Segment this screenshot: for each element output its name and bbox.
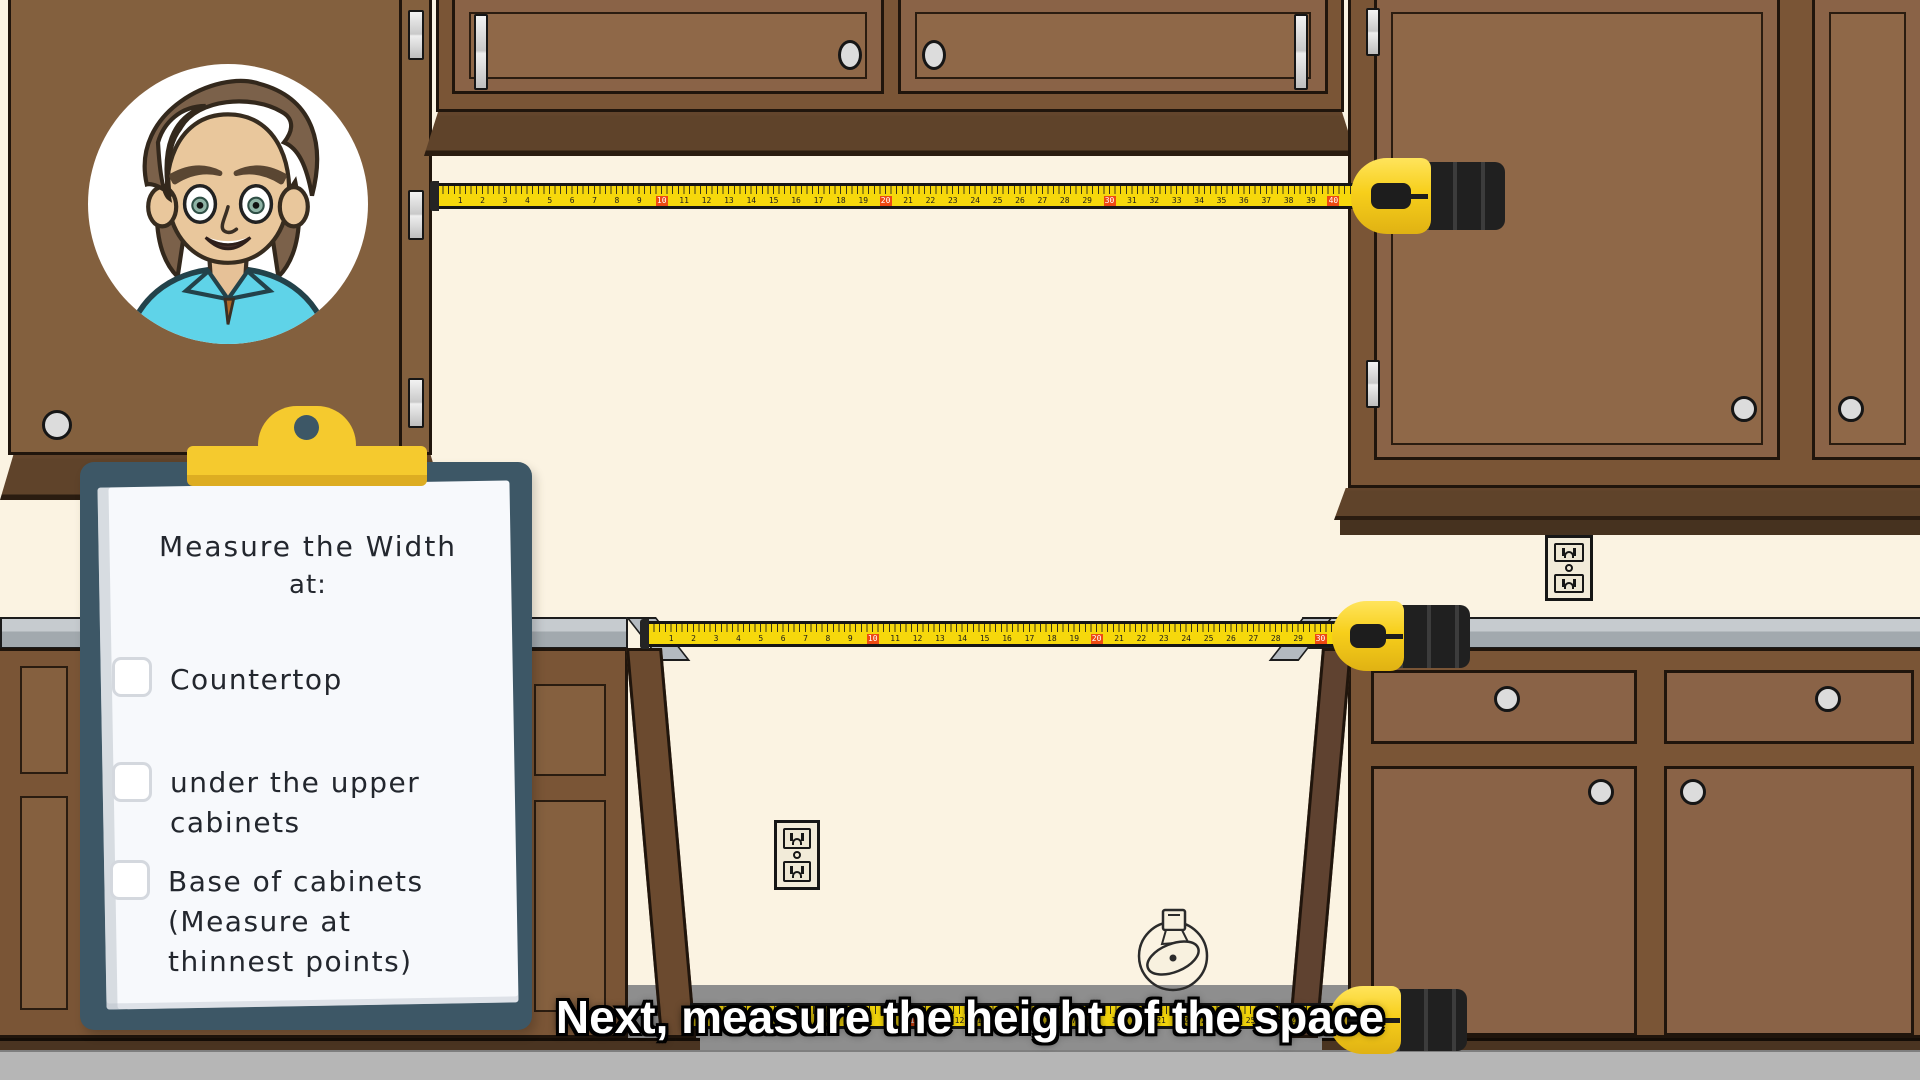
cabinet-panel xyxy=(20,796,68,1010)
checkbox-countertop[interactable] xyxy=(112,657,152,697)
measuring-tape-upper: 1234567891011121314151617181920212223242… xyxy=(437,183,1363,209)
cabinet-side-panel xyxy=(1288,648,1352,1038)
cabinet-knob xyxy=(42,410,72,440)
checklist-item-under-upper-cabinets: under the upper cabinets xyxy=(170,763,500,843)
hinge-icon xyxy=(408,378,424,428)
tape-case-clip xyxy=(1350,624,1386,648)
floor xyxy=(0,1050,1920,1080)
cabinet-shadow xyxy=(1340,520,1920,535)
outlet-icon xyxy=(774,820,820,890)
checkbox-under-upper-cabinets[interactable] xyxy=(112,762,152,802)
cabinet-drawer xyxy=(1664,670,1914,744)
tape-hook xyxy=(640,619,649,649)
cabinet-knob xyxy=(922,40,946,70)
checklist-title: Measure the Width xyxy=(112,528,504,566)
outlet-screw xyxy=(793,851,801,859)
checklist-item-base-of-cabinets: Base of cabinets (Measure at thinnest po… xyxy=(168,862,438,981)
hinge-icon xyxy=(1366,8,1380,56)
cabinet-side-panel xyxy=(626,648,696,1038)
kitchen-measuring-scene: 1234567891011121314151617181920212223242… xyxy=(0,0,1920,1080)
clip-hole xyxy=(294,415,319,440)
upper-cabinet-right xyxy=(1348,0,1920,488)
hinge-icon xyxy=(408,10,424,60)
tape-hook xyxy=(430,181,439,211)
cabinet-knob xyxy=(1838,396,1864,422)
cabinet-door xyxy=(1812,0,1920,460)
cabinet-panel xyxy=(20,666,68,774)
tape-numbers: 1234567891011121314151617181920212223242… xyxy=(648,624,1348,644)
hinge-icon xyxy=(1294,14,1308,90)
cabinet-stile-line xyxy=(399,0,402,452)
hinge-icon xyxy=(408,190,424,240)
outlet-receptacle xyxy=(783,861,811,882)
cabinet-door xyxy=(452,0,884,94)
cabinet-knob xyxy=(1731,396,1757,422)
subtitle-caption: Next, measure the height of the space xyxy=(480,990,1460,1044)
cabinet-molding xyxy=(424,112,1356,156)
outlet-receptacle xyxy=(1554,574,1584,593)
tape-measure-case xyxy=(1332,601,1470,671)
tape-measure-case xyxy=(1351,158,1505,234)
tape-case-clip xyxy=(1371,183,1411,209)
hinge-icon xyxy=(1366,360,1380,408)
hinge-icon xyxy=(474,14,488,90)
clipboard-clip xyxy=(187,446,427,486)
measuring-tape-countertop: 1234567891011121314151617181920212223242… xyxy=(648,621,1348,647)
outlet-receptacle xyxy=(783,828,811,849)
tape-numbers: 1234567891011121314151617181920212223242… xyxy=(437,186,1363,206)
presenter-avatar xyxy=(88,62,368,346)
cabinet-knob xyxy=(1588,779,1614,805)
cabinet-molding xyxy=(1334,488,1920,520)
checklist-item-countertop: Countertop xyxy=(170,660,500,700)
cabinet-door xyxy=(898,0,1328,94)
cabinet-panel xyxy=(534,800,606,1012)
checklist-title-suffix: at: xyxy=(112,570,504,600)
cabinet-door xyxy=(1664,766,1914,1036)
cabinet-knob xyxy=(1494,686,1520,712)
cabinet-knob xyxy=(1815,686,1841,712)
outlet-screw xyxy=(1565,564,1573,572)
outlet-receptacle xyxy=(1554,543,1584,562)
tape-measure-icon xyxy=(1130,906,1216,996)
checkbox-base-of-cabinets[interactable] xyxy=(110,860,150,900)
upper-cabinet-center xyxy=(436,0,1344,112)
cabinet-knob xyxy=(838,40,862,70)
cabinet-panel xyxy=(534,684,606,776)
cabinet-knob xyxy=(1680,779,1706,805)
outlet-icon xyxy=(1545,535,1593,601)
